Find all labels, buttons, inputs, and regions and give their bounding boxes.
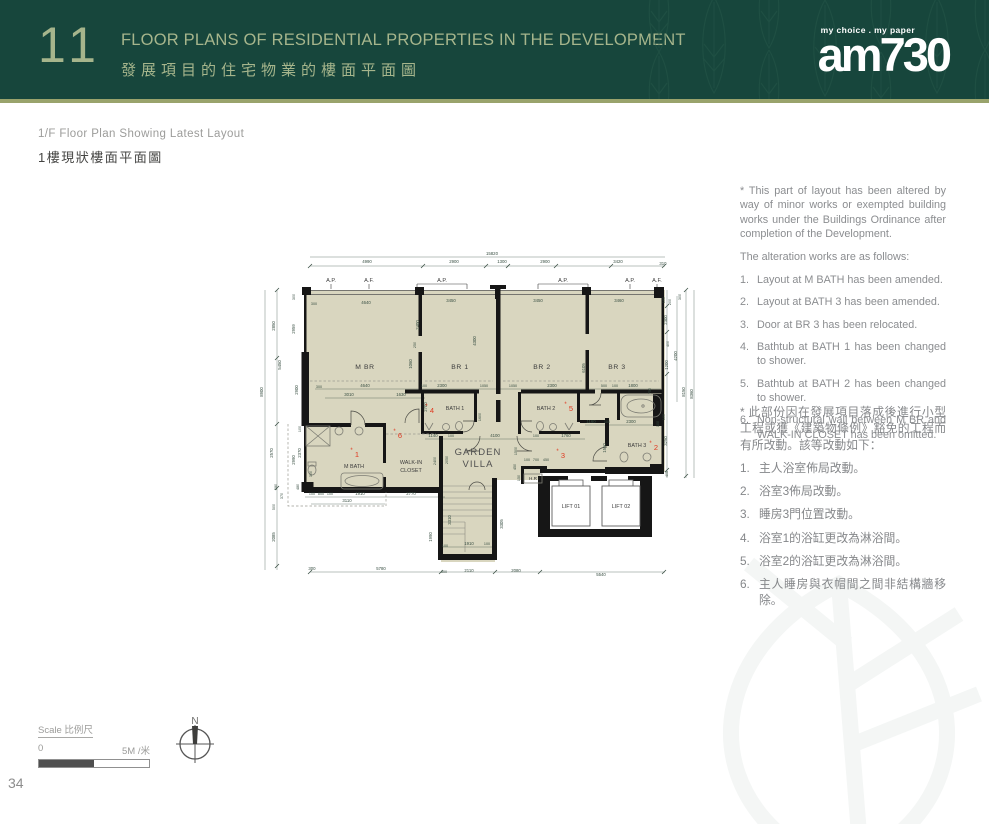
dim-label: 580 [274, 484, 278, 490]
alteration-marker-number: 3 [561, 451, 565, 460]
dim-label: 100 [662, 297, 666, 303]
notes-intro-en: * This part of layout has been altered b… [740, 184, 946, 241]
dim-label: 100 [656, 421, 660, 427]
dim-label: 2400 [433, 457, 437, 465]
dim-label: 100 [662, 414, 666, 420]
dim-label: 4640 [360, 383, 370, 388]
ap-label: A.P. [625, 278, 635, 284]
dim-label: 100 [298, 426, 302, 432]
header-rule [0, 99, 989, 103]
alteration-marker-number: 5 [569, 404, 573, 413]
page-title-chinese: 發展項目的住宅物業的樓面平面圖 [121, 59, 686, 80]
note-item-number: 4. [740, 340, 757, 369]
note-item: 1.Layout at M BATH has been amended. [740, 273, 946, 287]
header-band: 11 FLOOR PLANS OF RESIDENTIAL PROPERTIES… [0, 0, 989, 99]
dim-label: 1160 [586, 419, 596, 424]
dim-label: 3460 [614, 298, 624, 303]
dim-label: 2850 [271, 321, 276, 331]
note-item-number: 1. [740, 273, 757, 287]
note-item-text: Bathtub at BATH 1 has been changed to sh… [757, 340, 946, 369]
dim-label: 2900 [449, 259, 459, 264]
note-item-number: 2. [740, 295, 757, 309]
note-item-text: 主人浴室佈局改動。 [759, 460, 946, 476]
room-label: VILLA [463, 459, 494, 470]
note-item-text: 浴室1的浴缸更改為淋浴間。 [759, 530, 946, 546]
dim-label: 100 [442, 544, 448, 548]
brochure-page: 11 FLOOR PLANS OF RESIDENTIAL PROPERTIES… [0, 0, 989, 824]
room-label: BR 2 [533, 364, 551, 371]
dim-label: 300 [308, 566, 316, 571]
dim-label: 400 [666, 341, 670, 347]
page-number: 34 [8, 775, 24, 791]
dim-label: 15820 [486, 251, 499, 256]
note-item: 4.Bathtub at BATH 1 has been changed to … [740, 340, 946, 369]
room-label: BR 1 [451, 364, 469, 371]
ap-label: A.P. [437, 278, 447, 284]
dim-label: 5450 [277, 360, 282, 370]
section-number: 11 [38, 16, 102, 74]
dim-label: 2990 [291, 455, 296, 465]
note-item-text: 浴室3佈局改動。 [759, 483, 946, 499]
dim-label: 1910 [464, 541, 474, 546]
room-label: M BR [355, 364, 374, 371]
dim-label: 3420 [613, 259, 623, 264]
dim-label: 2300 [626, 419, 636, 424]
dim-label: 700 [533, 458, 539, 462]
dim-label: 1910 [355, 491, 365, 496]
note-item-number: 1. [740, 460, 759, 476]
ap-label: A.P. [558, 278, 568, 284]
dim-label: 450 [513, 464, 517, 470]
dim-label: 5780 [376, 566, 386, 571]
dim-label: 480 [296, 484, 300, 490]
dim-label: 1630 [396, 392, 406, 397]
dim-label: 405 [665, 471, 669, 477]
dim-label: 4100 [490, 433, 500, 438]
dim-label: 150 [517, 475, 521, 481]
floor-plan: 1582049902900130029003420310A.P.A.F.A.P.… [255, 240, 725, 590]
dim-label: 3450 [446, 298, 456, 303]
am730-logo: my choice . my paper am730 [818, 25, 949, 76]
dim-label: 8360 [689, 389, 694, 399]
ap-label: A.F. [364, 278, 374, 284]
dim-label: 2370 [297, 448, 302, 458]
note-item: 4.浴室1的浴缸更改為淋浴間。 [740, 530, 946, 546]
dim-label: 100 [448, 434, 454, 438]
dim-label: 1550 [602, 443, 607, 453]
note-item: 2.Layout at BATH 3 has been amended. [740, 295, 946, 309]
room-label: LIFT 02 [612, 504, 630, 510]
dim-label: 2300 [437, 383, 447, 388]
note-item: 2.浴室3佈局改動。 [740, 483, 946, 499]
dim-label: 2300 [547, 383, 557, 388]
room-label: LIFT 01 [562, 504, 580, 510]
notes-intro-zh: * 此部份因在發展項目落成後進行小型工程或獲《建築物條例》豁免的工程而有所改動。… [740, 404, 946, 453]
note-item-number: 2. [740, 483, 759, 499]
dim-label: 100 [533, 434, 539, 438]
room-label: CLOSET [400, 468, 422, 474]
dim-label: 1060 [408, 359, 413, 369]
dim-label: 2085 [271, 532, 276, 542]
dim-label: 250 [413, 342, 417, 348]
note-item-number: 3. [740, 506, 759, 522]
north-compass: N [172, 714, 218, 766]
dim-label: 370 [280, 493, 284, 499]
dim-label: 8150 [681, 387, 686, 397]
dim-label: 3110 [342, 498, 352, 503]
dim-label: 300 [316, 385, 322, 389]
notes-chinese: * 此部份因在發展項目落成後進行小型工程或獲《建築物條例》豁免的工程而有所改動。… [740, 404, 946, 609]
dim-label: 2959 [291, 324, 296, 334]
alteration-marker-number: 6 [398, 431, 402, 440]
dim-label: 1600 [478, 413, 482, 421]
dim-label: 750 [648, 388, 652, 394]
dim-label: 300 [309, 471, 313, 477]
dim-label: 3305 [499, 519, 504, 529]
note-item-text: 睡房3門位置改動。 [759, 506, 946, 522]
room-label: BATH 2 [537, 406, 555, 412]
scale-label: Scale 比例尺 [38, 722, 93, 738]
dim-label: 2570 [269, 448, 274, 458]
dim-label: 3310 [447, 515, 452, 525]
dim-label: 500 [272, 504, 276, 510]
dim-label: 2050 [445, 456, 449, 464]
note-item-text: Layout at M BATH has been amended. [757, 273, 946, 287]
note-item-number: 5. [740, 377, 757, 406]
note-item-number: 5. [740, 553, 759, 569]
dim-label: 6105 [581, 363, 586, 373]
dim-label: 3250 [663, 436, 668, 446]
note-item-text: 主人睡房與衣帽間之間非結構牆移除。 [759, 576, 946, 609]
dim-label: 450 [543, 458, 549, 462]
dim-label: 2300 [663, 315, 668, 325]
alteration-marker-number: 1 [355, 450, 359, 459]
compass-needle [192, 726, 198, 744]
note-item-number: 6. [740, 576, 759, 609]
note-item-number: 3. [740, 318, 757, 332]
dim-label: 4200 [673, 351, 678, 361]
dim-label: 3450 [533, 298, 543, 303]
dim-label: H.R [529, 476, 538, 481]
dim-label: 1140 [428, 433, 438, 438]
room-label: GARDEN [455, 447, 502, 458]
note-item: 6.主人睡房與衣帽間之間非結構牆移除。 [740, 576, 946, 609]
plan-subtitle-zh: 1樓現狀樓面平面圖 [38, 147, 163, 166]
note-item: 5.浴室2的浴缸更改為淋浴間。 [740, 553, 946, 569]
dim-label: 1990 [428, 532, 433, 542]
dim-label: 2110 [464, 568, 474, 573]
dim-label: 300 [292, 294, 296, 300]
dim-label: 100 [524, 458, 530, 462]
room-label: BATH 3 [628, 443, 646, 449]
dim-label: 1050 [480, 384, 488, 388]
dim-label: 4300 [472, 336, 477, 346]
dim-label: 5540 [596, 572, 606, 577]
dim-label: 1050 [509, 384, 517, 388]
ap-label: A.P. [326, 278, 336, 284]
logo-name: am730 [818, 33, 949, 76]
room-label: M BATH [344, 464, 364, 470]
scale-bar [38, 759, 150, 768]
dim-label: 2400 [415, 320, 420, 330]
dim-label: 200 [668, 299, 672, 305]
dim-label: 500 [601, 384, 607, 388]
room-label: WALK-IN [400, 460, 422, 466]
notes-lead-en: The alteration works are as follows: [740, 250, 946, 264]
dim-label: 2770 [406, 491, 416, 496]
dim-label: 4990 [362, 259, 372, 264]
scale-block: Scale 比例尺 0 5M /米 [38, 722, 150, 768]
note-item-text: Door at BR 3 has been relocated. [757, 318, 946, 332]
notes-list-zh: 1.主人浴室佈局改動。2.浴室3佈局改動。3.睡房3門位置改動。4.浴室1的浴缸… [740, 460, 946, 609]
dim-label: 2080 [511, 568, 521, 573]
dim-label: 100 [604, 420, 610, 424]
dim-label: 2900 [294, 385, 299, 395]
note-item: 1.主人浴室佈局改動。 [740, 460, 946, 476]
scale-max: 5M /米 [122, 743, 150, 757]
dim-label: 1200 [664, 360, 669, 370]
header-titles: FLOOR PLANS OF RESIDENTIAL PROPERTIES IN… [121, 31, 686, 80]
note-item: 5.Bathtub at BATH 2 has been changed to … [740, 377, 946, 406]
room-label: BATH 1 [446, 406, 464, 412]
lift-lobby [552, 480, 640, 526]
note-item-text: 浴室2的浴缸更改為淋浴間。 [759, 553, 946, 569]
dim-label: 1500 [514, 447, 518, 455]
dim-label: 100 [309, 492, 315, 496]
dim-label: 8900 [259, 387, 264, 397]
note-item-number: 4. [740, 530, 759, 546]
dim-label: 310 [659, 261, 667, 266]
alteration-marker-number: 2 [654, 443, 658, 452]
scale-zero: 0 [38, 743, 43, 757]
page-title: FLOOR PLANS OF RESIDENTIAL PROPERTIES IN… [121, 31, 686, 50]
dim-label: 300 [311, 302, 317, 306]
note-item-text: Bathtub at BATH 2 has been changed to sh… [757, 377, 946, 406]
dim-label: 100 [327, 492, 333, 496]
dim-label: 1300 [497, 259, 507, 264]
alteration-marker-number: 4 [430, 406, 434, 415]
ap-label: A.F. [652, 278, 662, 284]
dim-label: 300 [441, 570, 447, 574]
dim-label: 100 [484, 542, 490, 546]
dim-label: 4640 [361, 300, 371, 305]
note-item: 3.睡房3門位置改動。 [740, 506, 946, 522]
dim-label: 800 [318, 492, 324, 496]
dim-label: 300 [678, 294, 682, 300]
note-item: 3.Door at BR 3 has been relocated. [740, 318, 946, 332]
dim-label: 100 [421, 384, 427, 388]
room-label: BR 3 [608, 364, 626, 371]
dim-label: 1760 [561, 433, 571, 438]
dim-label: 1800 [628, 383, 638, 388]
dim-label: 3010 [344, 392, 354, 397]
plan-subtitle-en: 1/F Floor Plan Showing Latest Layout [38, 128, 244, 140]
dim-label: 2900 [540, 259, 550, 264]
note-item-text: Layout at BATH 3 has been amended. [757, 295, 946, 309]
dim-label: 100 [612, 384, 618, 388]
